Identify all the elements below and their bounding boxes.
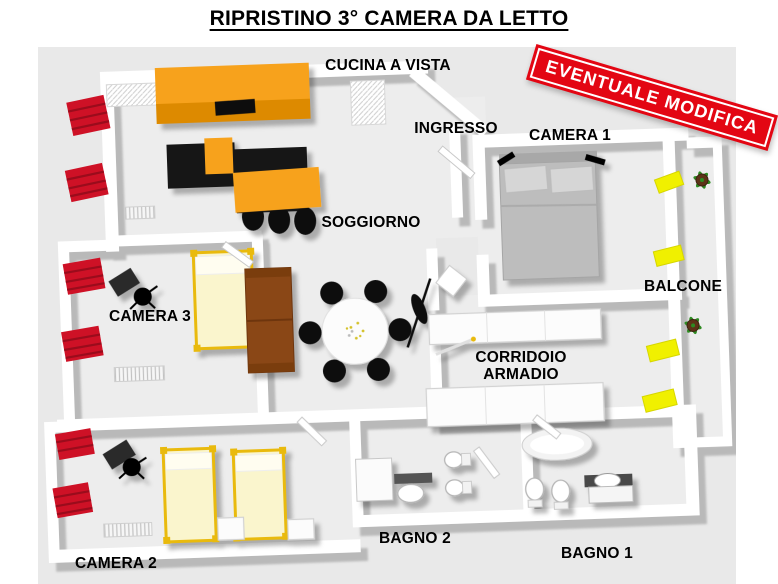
- double-bed-camera1: [497, 148, 610, 280]
- label-corridoio-line1: CORRIDOIO: [475, 349, 566, 366]
- shelf: [394, 473, 432, 484]
- label-ingresso: INGRESSO: [414, 120, 497, 138]
- floorplan-page: RIPRISTINO 3° CAMERA DA LETTO: [0, 0, 778, 584]
- label-corridoio-line2: ARMADIO: [475, 366, 566, 383]
- toilet-icon: [444, 452, 463, 469]
- bidet-icon: [445, 480, 464, 497]
- label-corridoio-armadio: CORRIDOIO ARMADIO: [475, 349, 566, 383]
- label-bagno1: BAGNO 1: [561, 545, 633, 563]
- label-balcone: BALCONE: [644, 278, 722, 296]
- bidet-icon: [551, 480, 570, 503]
- sink-icon: [397, 484, 424, 503]
- bath-cabinet: [589, 486, 634, 504]
- washing-machine-icon: [356, 458, 393, 501]
- kitchen-counter: [155, 63, 311, 124]
- label-cucina: CUCINA A VISTA: [325, 57, 451, 75]
- radiator-camera3: [114, 366, 164, 382]
- cooktop-icon: [215, 99, 256, 116]
- label-soggiorno: SOGGIORNO: [321, 214, 420, 232]
- stairs-hatch: [106, 83, 159, 107]
- radiator-camera2: [104, 522, 152, 537]
- radiator-kitchen: [125, 206, 155, 219]
- nightstand: [288, 519, 315, 540]
- kitchen-column-hatch: [350, 80, 386, 125]
- label-bagno2: BAGNO 2: [379, 530, 451, 548]
- label-camera1: CAMERA 1: [529, 127, 611, 145]
- sofa: [245, 267, 295, 373]
- kitchen-table: [233, 167, 322, 213]
- label-camera2: CAMERA 2: [75, 555, 157, 573]
- apartment: [38, 48, 736, 563]
- label-camera3: CAMERA 3: [109, 308, 191, 326]
- page-title: RIPRISTINO 3° CAMERA DA LETTO: [210, 7, 569, 31]
- side-table: [436, 265, 467, 296]
- nightstand: [218, 517, 245, 540]
- toilet-icon: [525, 478, 544, 501]
